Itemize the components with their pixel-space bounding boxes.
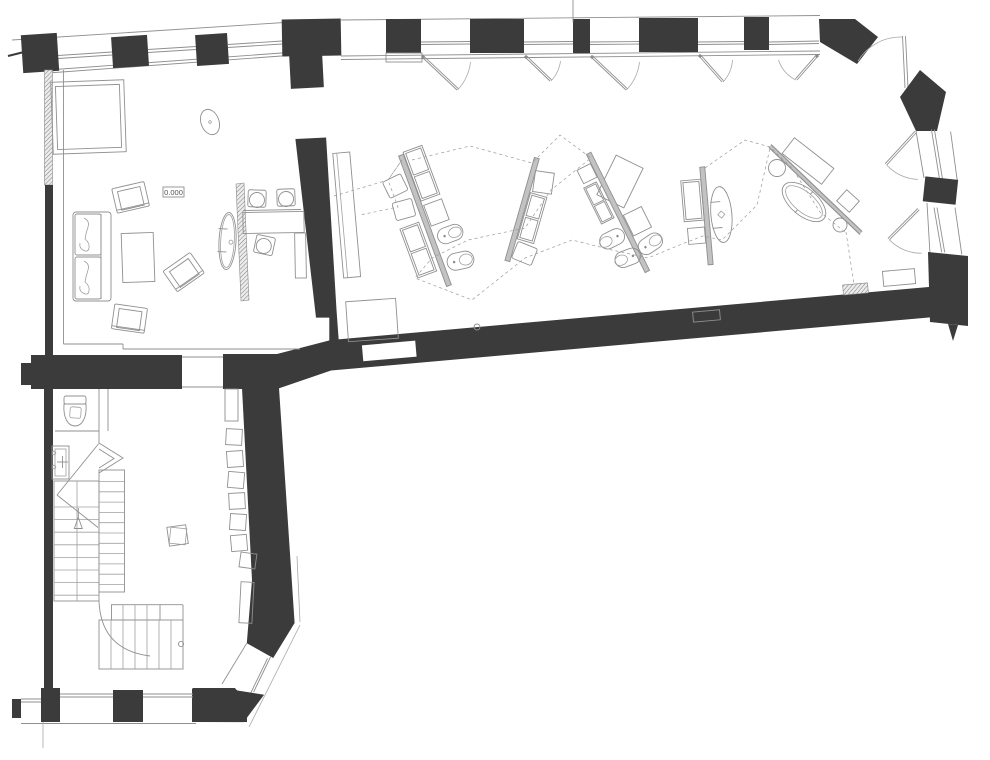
svg-text:0.000: 0.000 [164,188,183,197]
